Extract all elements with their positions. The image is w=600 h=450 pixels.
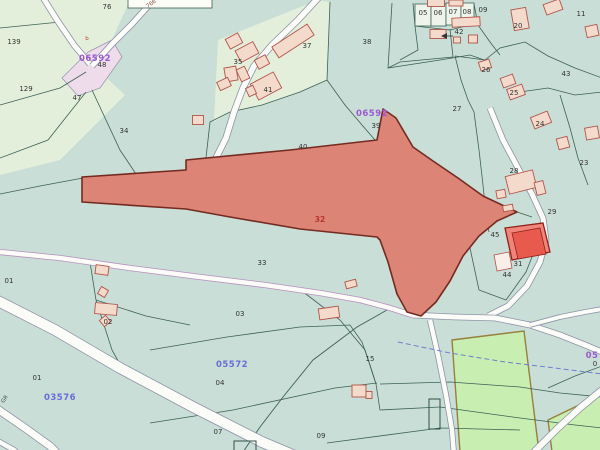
building xyxy=(469,35,478,43)
tiny-label-b: b xyxy=(85,36,89,42)
building xyxy=(556,136,569,149)
parcel-label-0: 0 xyxy=(593,360,597,368)
parcel-label-38: 38 xyxy=(363,38,372,46)
parcel-label-31: 31 xyxy=(514,260,523,268)
building xyxy=(452,17,480,27)
parcel-label-47: 47 xyxy=(73,94,82,102)
sports-field xyxy=(452,331,539,450)
building xyxy=(95,265,109,276)
sheet-label-03576: 03576 xyxy=(44,393,76,403)
parcel-label-28: 28 xyxy=(510,167,519,175)
building xyxy=(318,306,339,320)
building-highlighted xyxy=(512,228,546,259)
building xyxy=(494,252,512,271)
building xyxy=(503,204,514,212)
building xyxy=(585,24,599,37)
parcel-label-15: 15 xyxy=(366,355,375,363)
building xyxy=(352,385,366,397)
parcel-label-05: 05 xyxy=(419,9,428,17)
parcel-label-09: 09 xyxy=(479,6,488,14)
parcel-label-32: 32 xyxy=(315,215,325,224)
parcel-label-29: 29 xyxy=(548,208,557,216)
parcel-label-37: 37 xyxy=(303,42,312,50)
parcel-label-40: 40 xyxy=(299,143,308,151)
building xyxy=(193,116,204,125)
building xyxy=(95,303,118,316)
parcel-label-07: 07 xyxy=(449,8,458,16)
sheet-label-05: 05 xyxy=(586,351,599,361)
parcel-label-33: 33 xyxy=(258,259,267,267)
parcel-label-139: 139 xyxy=(7,38,20,46)
building xyxy=(585,126,600,140)
parcel-label-09: 09 xyxy=(317,432,326,440)
parcel-label-34: 34 xyxy=(120,127,129,135)
parcel-label-76: 76 xyxy=(103,3,112,11)
parcel-label-41: 41 xyxy=(264,86,273,94)
parcel-label-04: 04 xyxy=(216,379,225,387)
building xyxy=(449,0,463,6)
parcel-white xyxy=(128,0,212,8)
parcel-label-06: 06 xyxy=(434,9,443,17)
building xyxy=(366,392,372,399)
sheet-label-06592: 06592 xyxy=(356,109,388,119)
parcel-label-08: 08 xyxy=(463,8,472,16)
parcel-label-01: 01 xyxy=(5,277,14,285)
parcel-label-20: 20 xyxy=(514,22,523,30)
parcel-label-43: 43 xyxy=(562,70,571,78)
parcel-label-129: 129 xyxy=(19,85,32,93)
sheet-label-06592: 06592 xyxy=(79,54,111,64)
parcel-label-44: 44 xyxy=(503,271,512,279)
parcel-label-42: 42 xyxy=(455,28,464,36)
map-viewport[interactable]: 7613912947344837354140383942050607080920… xyxy=(0,0,600,450)
parcel-label-03: 03 xyxy=(236,310,245,318)
parcel-label-39: 39 xyxy=(372,122,381,130)
parcel-label-27: 27 xyxy=(453,105,462,113)
parcel-label-45: 45 xyxy=(491,231,500,239)
parcel-label-07: 07 xyxy=(214,428,223,436)
parcel-label-35: 35 xyxy=(234,58,243,66)
parcel-label-02: 02 xyxy=(104,318,113,326)
building xyxy=(496,189,506,198)
building xyxy=(428,0,445,7)
parcel-label-01: 01 xyxy=(33,374,42,382)
parcel-label-11: 11 xyxy=(577,10,586,18)
parcel-label-24: 24 xyxy=(536,120,545,128)
building xyxy=(454,37,461,43)
parcel-label-25: 25 xyxy=(510,89,519,97)
parcel-label-26: 26 xyxy=(482,66,491,74)
sheet-label-05572: 05572 xyxy=(216,360,248,370)
parcel-label-23: 23 xyxy=(580,159,589,167)
cadastral-map[interactable]: 7613912947344837354140383942050607080920… xyxy=(0,0,600,450)
